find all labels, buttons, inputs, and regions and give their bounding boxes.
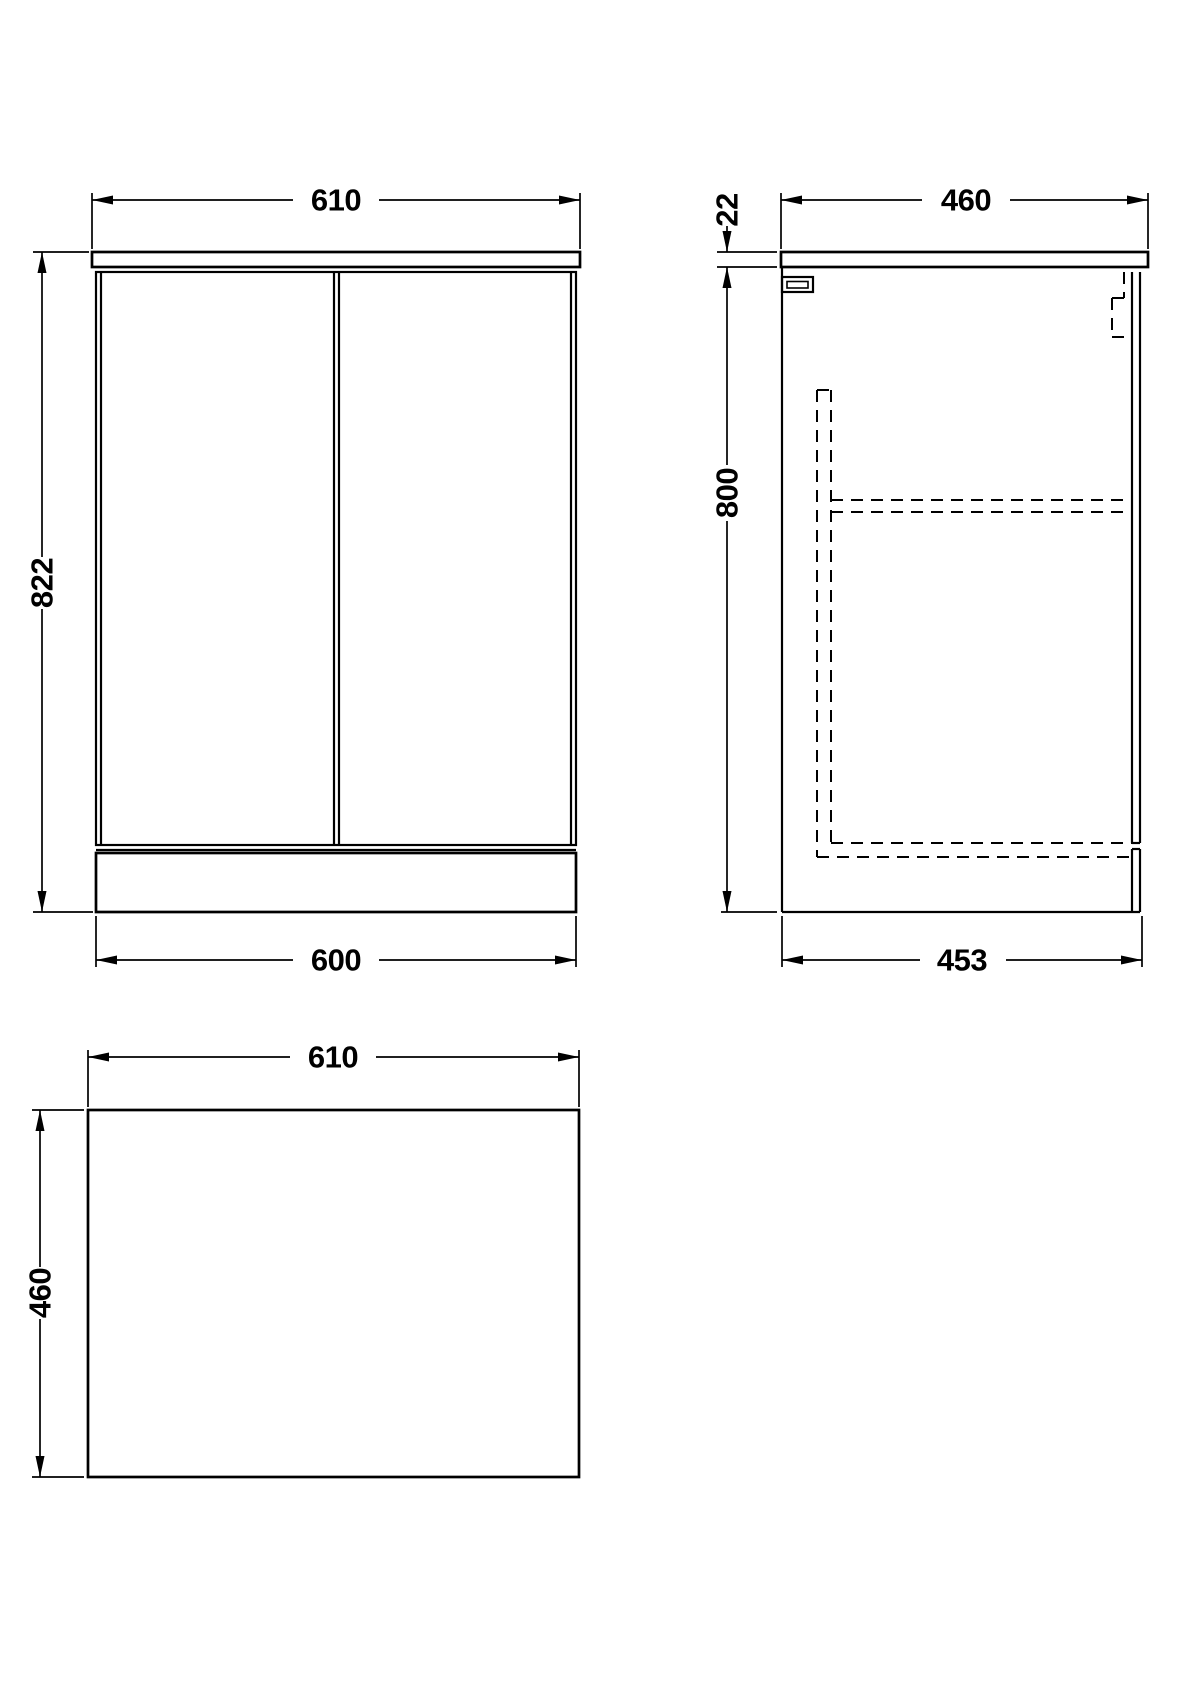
plan-depth-dimension-label: 460 bbox=[23, 1268, 58, 1318]
front-view: 610 822 600 bbox=[25, 183, 581, 978]
plan-width-dimension-label: 610 bbox=[308, 1040, 358, 1075]
front-worktop bbox=[92, 252, 580, 267]
technical-drawing-svg: 610 822 600 bbox=[0, 0, 1190, 1684]
plan-view: 610 460 bbox=[23, 1040, 580, 1478]
front-height-dimension: 822 bbox=[25, 252, 94, 912]
front-doors bbox=[96, 272, 576, 850]
plan-width-dimension: 610 bbox=[88, 1040, 579, 1108]
side-door-front bbox=[1132, 272, 1140, 912]
plan-outline bbox=[88, 1110, 579, 1477]
front-base-width-dimension: 600 bbox=[96, 916, 576, 978]
wall-bracket-detail bbox=[782, 277, 813, 292]
front-base-width-dimension-label: 600 bbox=[311, 943, 361, 978]
side-worktop bbox=[781, 252, 1148, 267]
side-base-depth-dimension: 453 bbox=[782, 916, 1142, 978]
front-width-dimension-label: 610 bbox=[311, 183, 361, 218]
side-view: 460 22 800 453 bbox=[710, 183, 1149, 978]
front-height-dimension-label: 822 bbox=[25, 558, 60, 608]
drawing-page: 610 822 600 bbox=[0, 0, 1190, 1684]
hidden-interior-lines bbox=[817, 390, 1132, 857]
side-base-depth-dimension-label: 453 bbox=[937, 943, 987, 978]
side-cabinet-outline bbox=[782, 267, 1140, 912]
side-depth-dimension: 460 bbox=[781, 183, 1148, 250]
side-height-dimension: 800 bbox=[710, 267, 778, 912]
side-height-dimension-label: 800 bbox=[710, 468, 745, 518]
side-worktop-thickness-dimension: 22 bbox=[710, 193, 778, 288]
hidden-hinge-detail bbox=[1112, 272, 1132, 337]
front-plinth bbox=[96, 853, 576, 912]
side-depth-dimension-label: 460 bbox=[941, 183, 991, 218]
side-worktop-thickness-label: 22 bbox=[710, 193, 745, 226]
front-width-dimension: 610 bbox=[92, 183, 580, 250]
front-doors-outline bbox=[96, 272, 576, 845]
plan-depth-dimension: 460 bbox=[23, 1110, 85, 1477]
